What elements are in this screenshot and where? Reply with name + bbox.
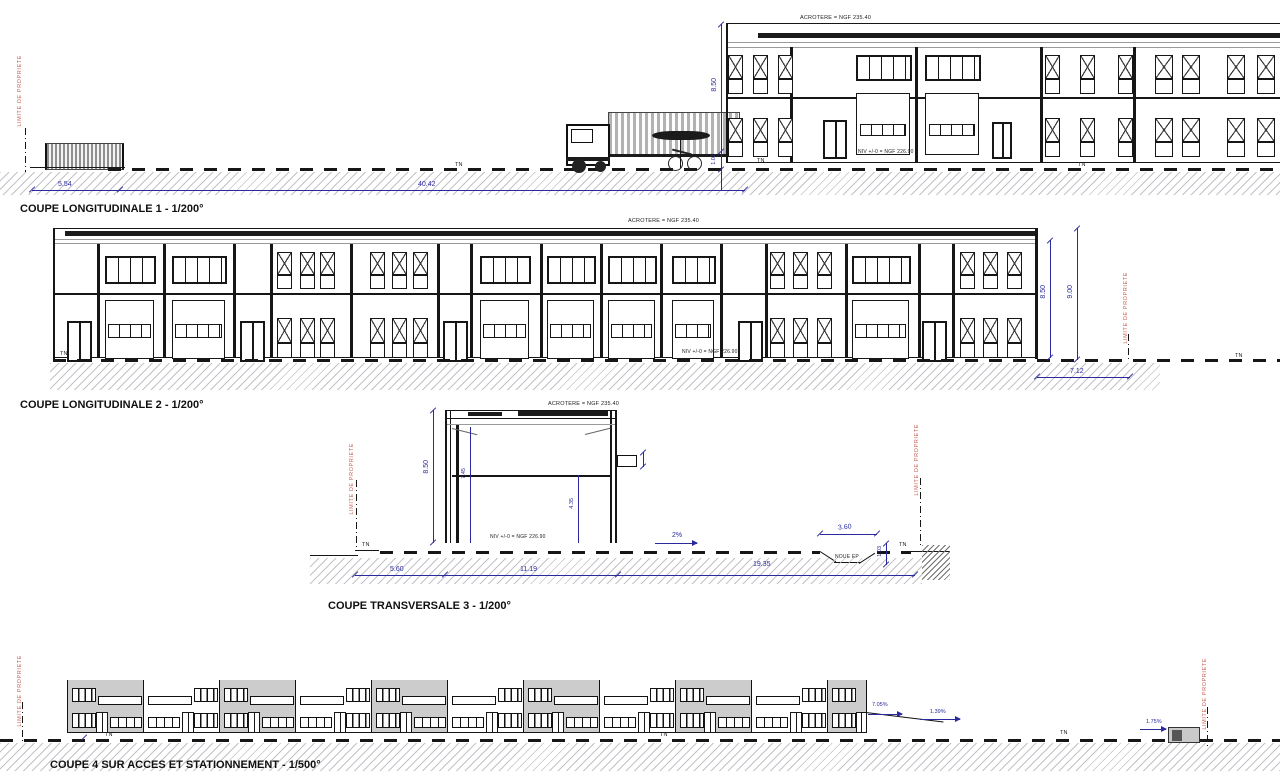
casement-window	[1257, 55, 1275, 94]
tn-label: TN	[899, 543, 907, 549]
pilaster	[952, 244, 955, 357]
window-trio	[680, 688, 704, 702]
window-trio	[802, 713, 826, 728]
window-trio	[224, 713, 248, 728]
wall-inner-line	[450, 410, 451, 543]
rooftop-equipment	[468, 412, 502, 416]
casement-window	[370, 318, 385, 358]
window-strip	[604, 696, 648, 705]
dim-clear-height: 7.45	[462, 468, 468, 479]
acrotere-line	[726, 23, 1280, 24]
casement-window	[960, 252, 975, 289]
entrance-door	[67, 321, 92, 362]
casement-window	[793, 318, 808, 358]
casement-window	[300, 318, 315, 358]
ground-line	[310, 555, 358, 556]
casement-window	[770, 252, 785, 289]
section4-title: COUPE 4 SUR ACCES ET STATIONNEMENT - 1/5…	[50, 759, 321, 771]
property-limit-label: LIMITE DE PROPRIETE	[350, 443, 356, 515]
unit-facade	[599, 680, 675, 732]
dim-mezzanine-height: 4.35	[570, 498, 576, 509]
casement-window	[753, 55, 768, 94]
window-strip	[554, 696, 598, 705]
window-strip	[452, 696, 496, 705]
dim-line	[721, 24, 722, 190]
truck-bumper	[566, 157, 610, 161]
entrance-door	[823, 120, 847, 159]
window-trio	[72, 688, 96, 702]
band-window	[718, 717, 750, 728]
band-window	[262, 717, 294, 728]
property-limit-line	[920, 478, 921, 545]
natural-ground-dashes	[0, 739, 1280, 742]
casement-window	[1182, 55, 1200, 94]
casement-window	[1155, 118, 1173, 157]
ground-hatch	[0, 172, 1280, 195]
casement-window	[1118, 55, 1133, 94]
wall-section	[610, 410, 612, 543]
slope-arrow	[655, 543, 697, 544]
bicycle-wheel	[668, 156, 683, 171]
dim-line	[820, 534, 877, 535]
dim-tick	[430, 539, 436, 545]
slope-arrow	[920, 719, 960, 720]
wall-edge	[1035, 228, 1038, 359]
pilaster	[1133, 47, 1136, 163]
acrotere-line	[53, 228, 1038, 229]
unit-facade	[143, 680, 219, 732]
pilaster	[540, 244, 543, 357]
interior-column	[456, 425, 459, 543]
roof-band	[65, 231, 1038, 236]
roof-edge-line	[726, 47, 1280, 48]
tree-canopy	[652, 131, 710, 140]
wall-section	[445, 410, 447, 543]
casement-window	[778, 55, 793, 94]
unit-facade	[675, 680, 751, 732]
casement-window	[320, 252, 335, 289]
window-trio	[498, 713, 522, 728]
section3-title: COUPE TRANSVERSALE 3 - 1/200°	[328, 600, 511, 612]
tn-label: TN	[105, 733, 113, 739]
niveau-label: NIV +/-0 = NGF 226.90	[682, 350, 738, 355]
window-strip	[98, 696, 142, 705]
window-trio	[346, 688, 370, 702]
casement-window	[1045, 118, 1060, 157]
roof-slab-line	[447, 424, 615, 425]
truck-wheel	[572, 159, 586, 173]
tn-label: TN	[60, 352, 68, 358]
natural-ground-dashes	[380, 551, 820, 554]
casement-window	[817, 252, 832, 289]
truck-wheel	[595, 161, 606, 172]
unit-facade	[67, 680, 143, 732]
floor-slab-line	[55, 293, 1035, 295]
casement-window	[277, 252, 292, 289]
pilaster	[437, 244, 440, 357]
canopy-box	[617, 455, 637, 467]
casement-window	[983, 252, 998, 289]
unit-facade	[219, 680, 295, 732]
acrotere-label: ACROTERE = NGF 235.40	[628, 219, 699, 225]
entrance-door	[704, 712, 716, 733]
rooftop-equipment	[518, 411, 608, 416]
band-window	[566, 717, 598, 728]
tn-label: TN	[1235, 354, 1243, 360]
entrance-door	[992, 122, 1012, 159]
band-window	[925, 55, 981, 81]
casement-window	[770, 318, 785, 358]
pilaster	[1040, 47, 1043, 163]
property-limit-label: LIMITE DE PROPRIETE	[18, 55, 24, 127]
entrance-door	[334, 712, 346, 733]
entrance-door	[790, 712, 802, 733]
window-trio	[194, 688, 218, 702]
casement-window	[1182, 118, 1200, 157]
window-trio	[528, 688, 552, 702]
tn-label: TN	[455, 163, 463, 169]
band-window	[756, 717, 788, 728]
roof-brace	[585, 428, 610, 435]
pilaster	[720, 244, 723, 357]
casement-window	[320, 318, 335, 358]
window-trio	[346, 713, 370, 728]
property-limit-line	[25, 128, 26, 172]
dim-line	[32, 190, 745, 191]
band-window	[300, 717, 332, 728]
section2-title: COUPE LONGITUDINALE 2 - 1/200°	[20, 399, 204, 411]
slope-arrow	[868, 714, 902, 715]
casement-window	[817, 318, 832, 358]
acrotere-label: ACROTERE = NGF 235.40	[800, 16, 871, 22]
band-window	[608, 256, 657, 284]
band-window	[672, 256, 716, 284]
sectional-door	[172, 300, 225, 359]
tn-label: TN	[1078, 163, 1086, 169]
casement-window	[1257, 118, 1275, 157]
entrance-door	[552, 712, 564, 733]
existing-ground-hatch	[922, 545, 950, 580]
casement-window	[728, 118, 743, 157]
dim-building-width: 11.19	[520, 566, 537, 573]
roof-slab-line	[447, 418, 615, 419]
niveau-label: NIV +/-0 = NGF 226.90	[490, 535, 546, 540]
dim-line	[1037, 377, 1130, 378]
entrance-door	[922, 321, 947, 362]
casement-window	[1007, 318, 1022, 358]
dim-total-height: 9.00	[1067, 285, 1074, 299]
unit-facade	[523, 680, 599, 732]
casement-window	[300, 252, 315, 289]
tn-label: TN	[362, 543, 370, 549]
casement-window	[983, 318, 998, 358]
dim-base-height: 1.01	[712, 154, 718, 165]
window-trio	[680, 713, 704, 728]
truck-window	[571, 129, 593, 143]
dim-line	[1050, 240, 1051, 358]
natural-ground-dashes	[53, 359, 1280, 362]
band-window	[414, 717, 446, 728]
pilaster	[845, 244, 848, 357]
window-strip	[706, 696, 750, 705]
building-base-line	[726, 162, 1280, 163]
section1-title: COUPE LONGITUDINALE 1 - 1/200°	[20, 203, 204, 215]
dim-slope-c: 1.75%	[1146, 720, 1162, 726]
band-window	[547, 256, 596, 284]
casement-window	[1227, 118, 1245, 157]
pilaster	[470, 244, 473, 357]
sectional-door	[105, 300, 154, 359]
tn-label: TN	[757, 159, 765, 165]
unit-facade	[751, 680, 827, 732]
dim-yard-width: 40.42	[418, 181, 436, 188]
entrance-door	[96, 712, 108, 733]
pilaster	[600, 244, 603, 357]
ground-hatch	[50, 363, 1160, 390]
pilaster	[270, 244, 273, 357]
window-strip	[300, 696, 344, 705]
entrance-door	[856, 712, 867, 733]
window-trio	[194, 713, 218, 728]
band-window	[148, 717, 180, 728]
band-window	[452, 717, 484, 728]
acrotere-label: ACROTERE = NGF 235.40	[548, 402, 619, 408]
sectional-door	[480, 300, 529, 359]
dim-fence-width: 5.54	[58, 181, 72, 188]
dim-line	[433, 410, 434, 543]
casement-window	[413, 318, 428, 358]
dim-front-width: 5.60	[390, 566, 404, 573]
dim-swale-depth: 1.03	[878, 546, 884, 557]
casement-window	[370, 252, 385, 289]
casement-window	[1080, 55, 1095, 94]
window-trio	[832, 688, 856, 702]
band-window	[172, 256, 227, 284]
casement-window	[392, 252, 407, 289]
roof-edge-line	[53, 239, 1038, 240]
entrance-door	[240, 321, 265, 362]
unit-facade	[295, 680, 371, 732]
casement-window	[1080, 118, 1095, 157]
ground-line	[355, 550, 379, 551]
pilaster	[350, 244, 353, 357]
pilaster	[915, 47, 918, 163]
entrance-door	[638, 712, 650, 733]
property-limit-label: LIMITE DE PROPRIETE	[1124, 272, 1130, 344]
sectional-door	[608, 300, 655, 359]
property-limit-line	[22, 702, 23, 742]
dim-swale-width: 3.60	[838, 523, 852, 531]
dim-rear-width: 19.35	[753, 561, 771, 568]
casement-window	[753, 118, 768, 157]
window-trio	[528, 713, 552, 728]
dim-line	[578, 475, 579, 543]
band-window	[110, 717, 142, 728]
window-strip	[756, 696, 800, 705]
window-strip	[148, 696, 192, 705]
casement-window	[1118, 118, 1133, 157]
entrance-door	[400, 712, 412, 733]
casement-window	[728, 55, 743, 94]
unit-facade	[447, 680, 523, 732]
unit-facade	[827, 680, 867, 732]
shed-door	[1172, 730, 1182, 741]
pilaster	[97, 244, 100, 357]
casement-window	[1155, 55, 1173, 94]
pilaster	[163, 244, 166, 357]
drawing-sheet: LIMITE DE PROPRIETE 5.54 40.42 TN	[0, 0, 1280, 775]
roof-band	[758, 33, 1280, 38]
casement-window	[413, 252, 428, 289]
floor-slab-line	[726, 97, 1280, 99]
fence	[45, 143, 124, 170]
window-trio	[376, 713, 400, 728]
dim-building-height: 8.50	[711, 78, 718, 92]
sectional-door	[547, 300, 594, 359]
dim-line	[1077, 228, 1078, 360]
casement-window	[392, 318, 407, 358]
entrance-door	[738, 321, 763, 362]
dim-building-height: 8.50	[423, 460, 430, 474]
tn-label: TN	[660, 733, 668, 739]
slope-arrow	[1140, 729, 1166, 730]
bicycle-wheel	[687, 156, 702, 171]
pilaster	[233, 244, 236, 357]
window-trio	[802, 688, 826, 702]
casement-window	[1227, 55, 1245, 94]
dim-line	[470, 427, 471, 543]
window-trio	[498, 688, 522, 702]
dim-slope-a: 7.05%	[872, 703, 888, 709]
band-window	[856, 55, 912, 81]
window-trio	[376, 688, 400, 702]
pilaster	[660, 244, 663, 357]
tn-label: TN	[1060, 731, 1068, 737]
casement-window	[277, 318, 292, 358]
casement-window	[1045, 55, 1060, 94]
sectional-door	[925, 93, 979, 155]
mezzanine-slab-line	[452, 475, 610, 477]
pilaster	[765, 244, 768, 357]
dim-slope-b: 1.39%	[930, 710, 946, 716]
property-limit-line	[1128, 334, 1129, 362]
window-trio	[650, 688, 674, 702]
window-trio	[832, 713, 856, 728]
entrance-door	[248, 712, 260, 733]
roof-edge-line	[726, 42, 1280, 43]
window-strip	[250, 696, 294, 705]
window-trio	[224, 688, 248, 702]
casement-window	[1007, 252, 1022, 289]
band-window	[604, 717, 636, 728]
dim-tick	[874, 530, 880, 536]
entrance-door	[182, 712, 194, 733]
pilaster	[918, 244, 921, 357]
unit-facade	[371, 680, 447, 732]
band-window	[852, 256, 911, 284]
window-trio	[650, 713, 674, 728]
roof-edge-line	[53, 243, 1038, 244]
dim-rear-width: 7.12	[1070, 368, 1084, 375]
band-window	[105, 256, 156, 284]
casement-window	[793, 252, 808, 289]
dim-line	[355, 575, 915, 576]
wall-section	[615, 410, 617, 543]
sectional-door	[856, 93, 910, 155]
window-strip	[402, 696, 446, 705]
entrance-door	[486, 712, 498, 733]
casement-window	[778, 118, 793, 157]
sectional-door	[852, 300, 909, 359]
dim-tick	[640, 463, 646, 469]
window-trio	[72, 713, 96, 728]
entrance-door	[443, 321, 468, 362]
property-limit-line	[356, 480, 357, 548]
niveau-label: NIV +/-0 = NGF 226.90	[858, 150, 914, 155]
band-window	[480, 256, 531, 284]
casement-window	[960, 318, 975, 358]
dim-building-height: 8.50	[1040, 285, 1047, 299]
dim-slope: 2%	[672, 532, 682, 539]
